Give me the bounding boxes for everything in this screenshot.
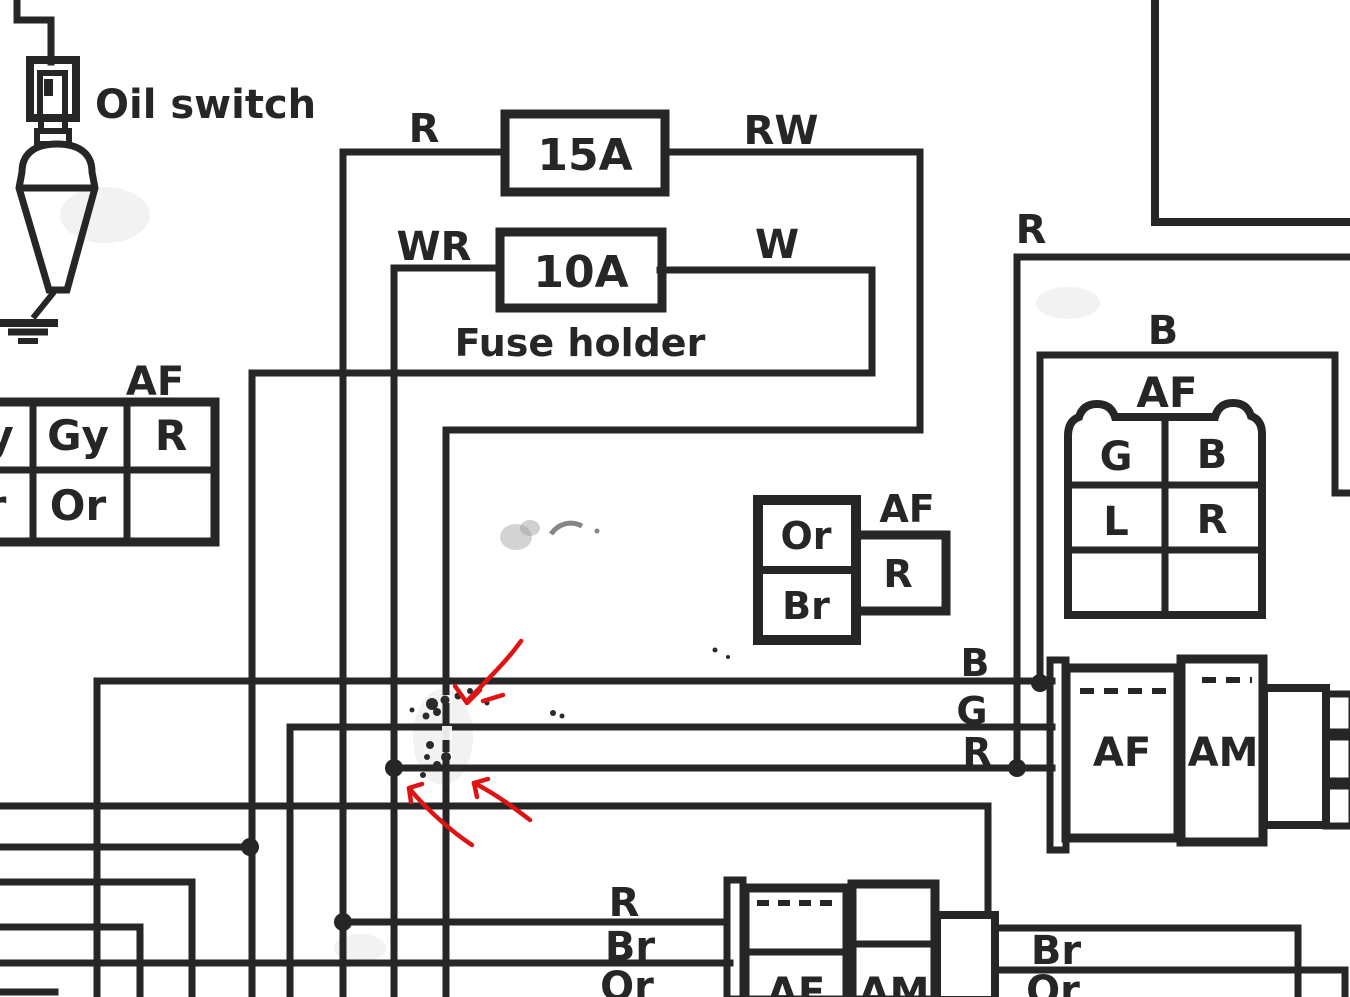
out-label-or: Or <box>1026 968 1080 997</box>
fuse-10a-label: 10A <box>533 247 628 298</box>
annotation-arrow-2 <box>474 779 530 820</box>
junction-dot <box>1031 674 1049 692</box>
connector-af-bottom-label: AF <box>767 970 825 997</box>
bottom-label-r: R <box>609 880 640 926</box>
wire-bus-806 <box>0 806 988 915</box>
connector-am-bottom-label: AM <box>859 970 930 997</box>
mid-cell-r: R <box>883 552 912 596</box>
junction-dot <box>241 838 259 856</box>
fuse-holder-label: Fuse holder <box>455 321 706 365</box>
cell-r: R <box>155 411 187 460</box>
cell-frag-r: r <box>0 481 7 530</box>
wire-oil-switch-feed <box>17 0 51 62</box>
mating-box <box>1264 688 1326 825</box>
cell-l: L <box>1103 499 1129 545</box>
junction-dot <box>334 913 352 931</box>
connector-af-right-label: AF <box>1136 368 1197 417</box>
junction-dot <box>385 759 403 777</box>
wire-label-rw: RW <box>744 108 819 154</box>
connector-af-mid-label: AF <box>879 487 934 531</box>
wire-label-r: R <box>409 106 440 152</box>
cell-r2: R <box>1197 497 1228 543</box>
cell-or: Or <box>50 481 107 530</box>
mating-box-bottom <box>937 915 995 997</box>
diagram-canvas: Oil switch R 15A RW WR 10A W Fuse holder… <box>0 0 1350 997</box>
wire-r-from-fuse <box>343 152 505 997</box>
fuse-15a-label: 15A <box>537 130 632 181</box>
wire-top-right-box <box>1155 0 1350 222</box>
wire-label-wr: WR <box>397 224 472 270</box>
pencil-smudge <box>500 520 600 550</box>
wiring <box>0 0 1350 997</box>
bottom-label-or: Or <box>600 964 654 997</box>
connector-af-rm-label: AF <box>1093 730 1151 776</box>
bus-label-b: B <box>961 641 990 685</box>
wire-label-b-right: B <box>1148 308 1179 354</box>
connector-am-rm-label: AM <box>1188 730 1259 776</box>
ground-stem <box>33 292 54 318</box>
mid-cell-br: Br <box>782 584 830 628</box>
connector-af-right-top <box>1068 403 1262 615</box>
wire-label-r-right: R <box>1016 207 1047 253</box>
cell-b: B <box>1197 432 1228 478</box>
annotation-arrow-3 <box>409 784 472 845</box>
ground-icon <box>0 323 58 341</box>
connector-af-left-label: AF <box>126 359 184 405</box>
wiring-diagram: Oil switch R 15A RW WR 10A W Fuse holder… <box>0 0 1350 997</box>
cell-gy: Gy <box>47 411 109 460</box>
annotation-arrow-1 <box>455 641 521 703</box>
bus-label-g: G <box>956 689 987 733</box>
bus-label-r: R <box>962 730 991 774</box>
wire-label-w: W <box>755 222 799 268</box>
oil-switch-label: Oil switch <box>95 82 316 128</box>
junction-dot <box>1008 759 1026 777</box>
wire-rw-from-fuse <box>446 152 920 997</box>
cell-g: G <box>1100 434 1133 480</box>
cell-frag-y: y <box>0 411 14 460</box>
mid-cell-or: Or <box>780 514 831 558</box>
